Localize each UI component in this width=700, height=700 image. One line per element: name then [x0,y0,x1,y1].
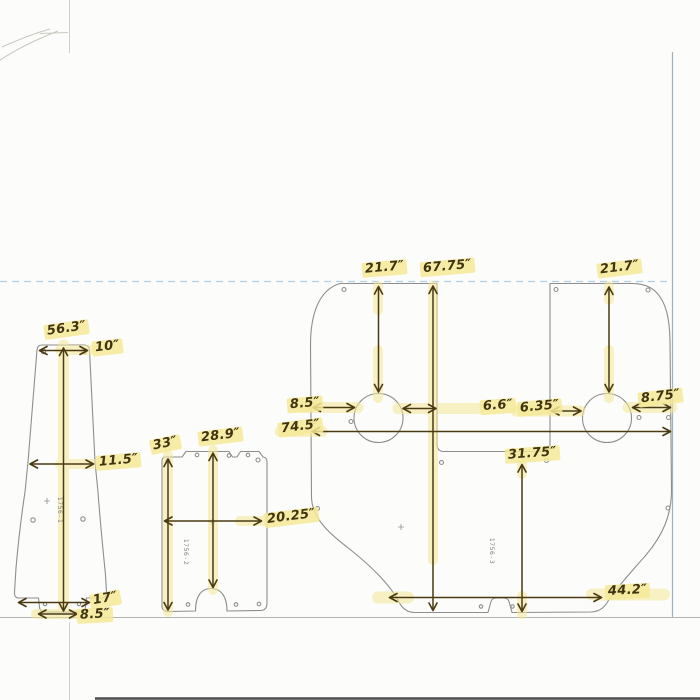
dim-label-p3-left-inset: 8.5″ [286,395,323,413]
registration-marks [44,498,404,530]
part-number-1756-1: 1756-1 [56,497,64,523]
dim-label-p3-left-gap: 6.6″ [480,398,517,415]
pencil-scribble [0,29,68,62]
highlighter-marks [36,286,672,614]
part-outlines [14,284,671,613]
part-number-1756-3: 1756-3 [488,538,496,564]
dim-label-p1-tab-width: 8.5″ [77,607,114,624]
dim-label-p3-bottom-width: 44.2″ [605,583,651,600]
dimension-arrows [19,287,670,615]
part-number-1756-2: 1756-2 [182,539,190,565]
dim-label-p1-top-width: 10″ [91,338,123,356]
scanned-template-drawing: 56.3″ 10″ 11.5″ 17″ 8.5″ 33″ 28.9″ 20.25… [0,0,700,700]
